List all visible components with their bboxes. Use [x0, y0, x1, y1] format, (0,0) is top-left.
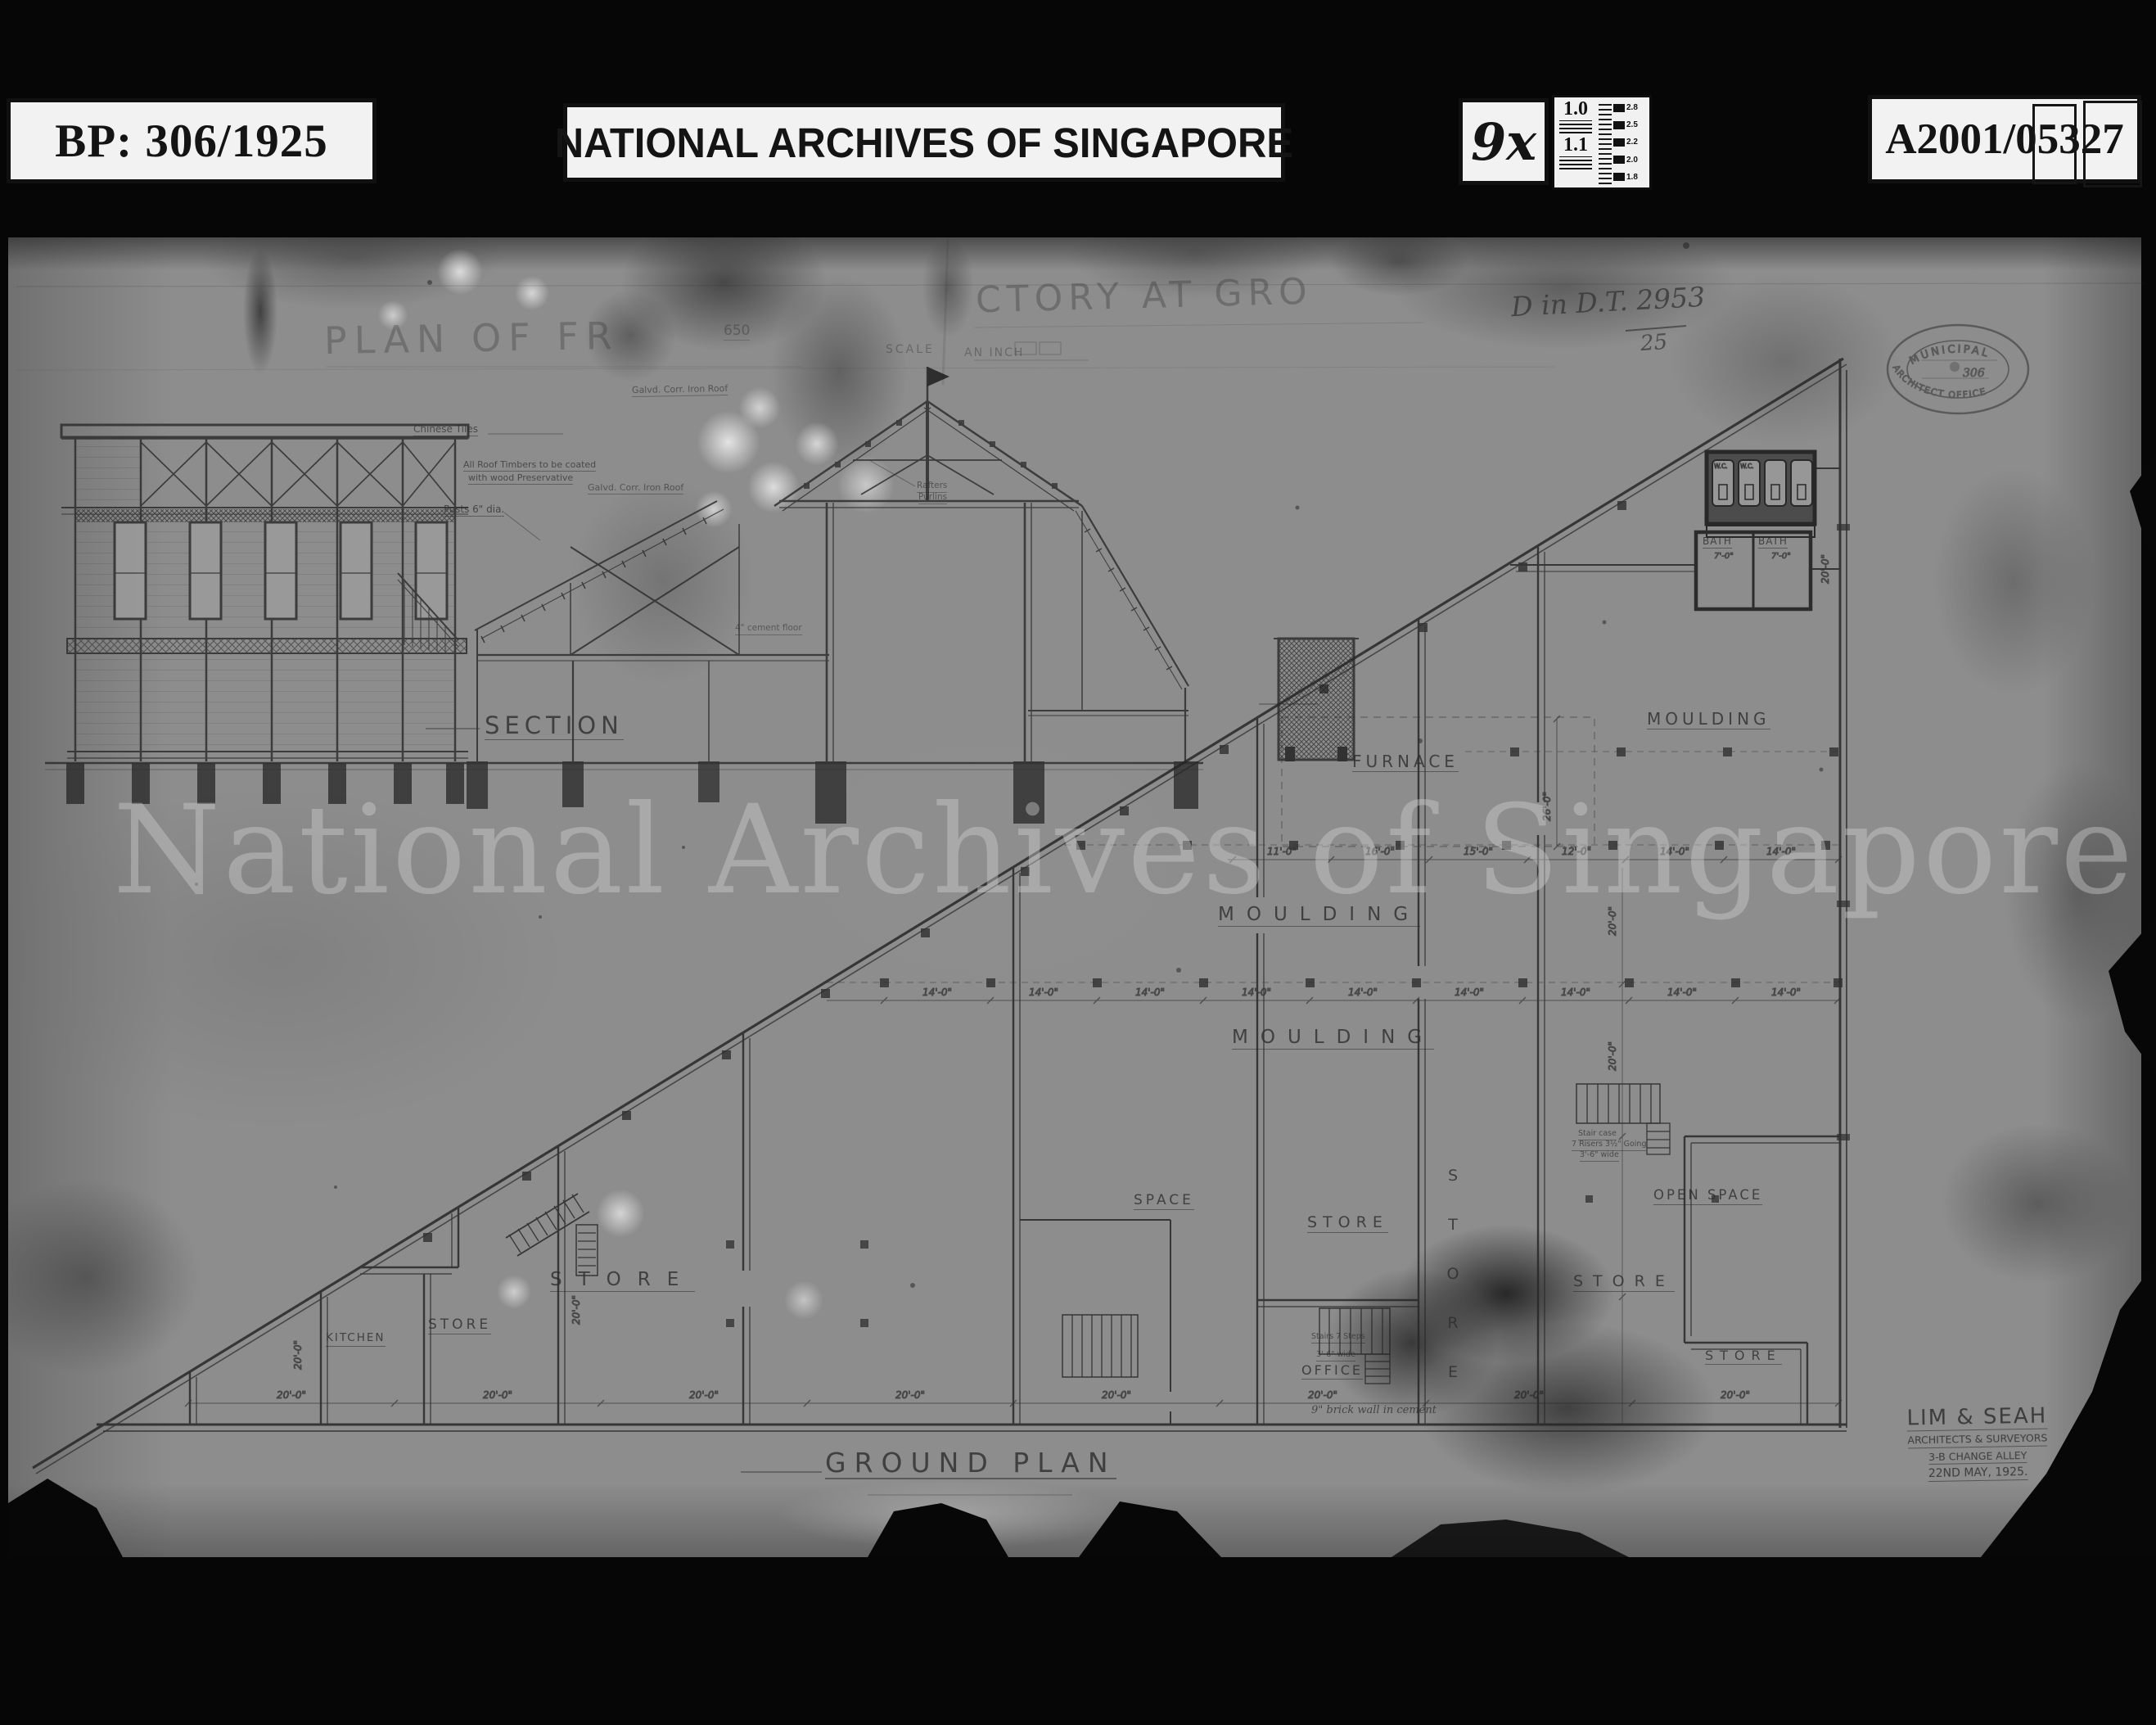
scanned-archive-page: BP: 306/1925 NATIONAL ARCHIVES OF SINGAP…	[0, 0, 2156, 1725]
torn-edge-overlays	[0, 0, 2156, 1725]
